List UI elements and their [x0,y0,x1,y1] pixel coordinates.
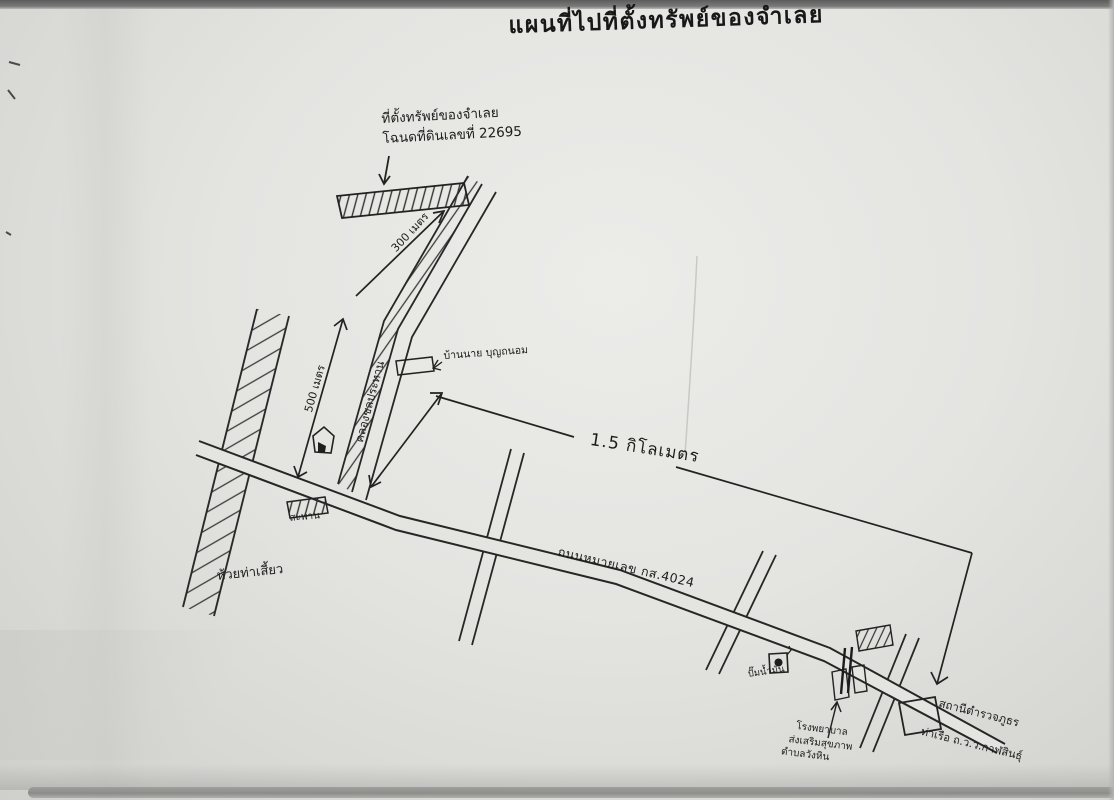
edge-marks [6,62,20,235]
main-road [196,441,1005,753]
property-note: ที่ตั้งทรัพย์ของจำเลย โฉนดที่ดินเลขที่ 2… [381,103,522,149]
roadside-building [856,625,893,651]
note-arrow [379,156,390,184]
scan-edge-bottom [28,787,1114,798]
map-drawing [0,0,1114,800]
shelter-icon [313,427,334,453]
bridge-label: สะพาน [289,509,321,526]
hospital-label: โรงพยาบาล ส่งเสริมสุขภาพ ตำบลวังหิน [792,720,855,767]
scan-edge-right [1108,0,1114,800]
paper-crease-line [685,256,697,455]
scanned-map-document: แผนที่ไปที่ตั้งทรัพย์ของจำเลย ที่ตั้งทรั… [0,0,1114,800]
